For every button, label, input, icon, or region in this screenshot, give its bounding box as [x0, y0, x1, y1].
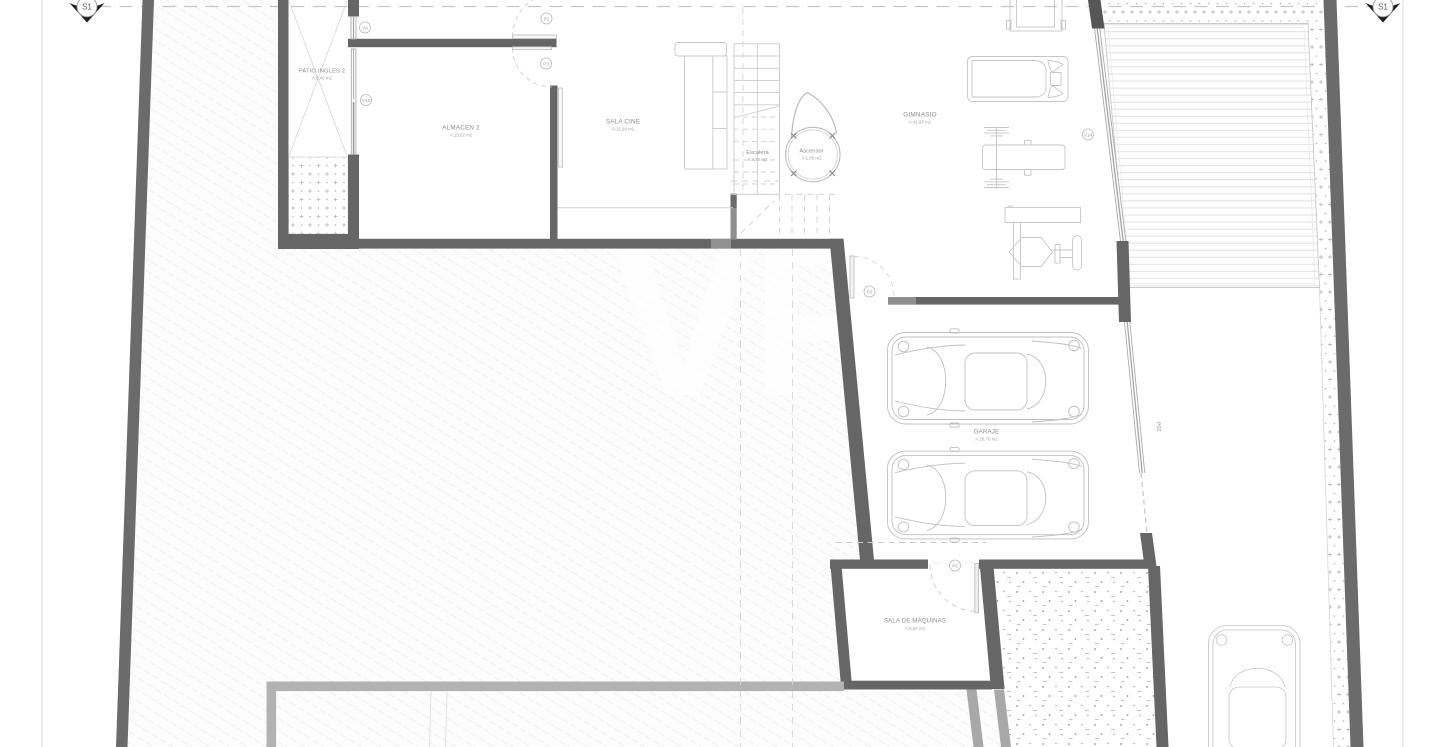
svg-text:SALA CINE: SALA CINE: [606, 119, 640, 126]
svg-text:V14: V14: [1084, 133, 1093, 138]
svg-text:ALMACEN 2: ALMACEN 2: [442, 125, 480, 132]
svg-text:P2: P2: [867, 290, 873, 295]
svg-text:A:15,02 m2: A:15,02 m2: [450, 133, 473, 138]
svg-text:GARAJE: GARAJE: [974, 429, 1000, 436]
svg-text:S1: S1: [82, 3, 92, 12]
svg-text:A:8,46 m2: A:8,46 m2: [312, 76, 333, 81]
svg-text:Escalera: Escalera: [746, 150, 769, 156]
svg-text:GIMNASIO: GIMNASIO: [903, 112, 937, 119]
svg-text:P3: P3: [543, 62, 549, 67]
svg-text:V4: V4: [362, 26, 368, 31]
svg-text:PATIO INGLES 2: PATIO INGLES 2: [299, 69, 345, 75]
svg-text:A:6,56 m2: A:6,56 m2: [905, 626, 926, 631]
svg-text:A:4,70 m2: A:4,70 m2: [747, 157, 768, 162]
svg-text:V12: V12: [362, 98, 371, 103]
svg-text:P2: P2: [544, 17, 550, 22]
svg-text:P02: P02: [1154, 422, 1161, 432]
svg-text:Ascensor: Ascensor: [799, 149, 823, 155]
svg-text:A:15,68 m2: A:15,68 m2: [612, 127, 635, 132]
svg-text:S1: S1: [1378, 3, 1388, 12]
svg-text:A:26,70 m2: A:26,70 m2: [975, 437, 998, 442]
svg-text:SALA DE MÁQUINAS: SALA DE MÁQUINAS: [884, 618, 946, 625]
svg-text:P6: P6: [952, 564, 958, 569]
svg-text:A:41,95 m2: A:41,95 m2: [909, 120, 932, 125]
svg-text:A:1,95 m2: A:1,95 m2: [801, 156, 822, 161]
